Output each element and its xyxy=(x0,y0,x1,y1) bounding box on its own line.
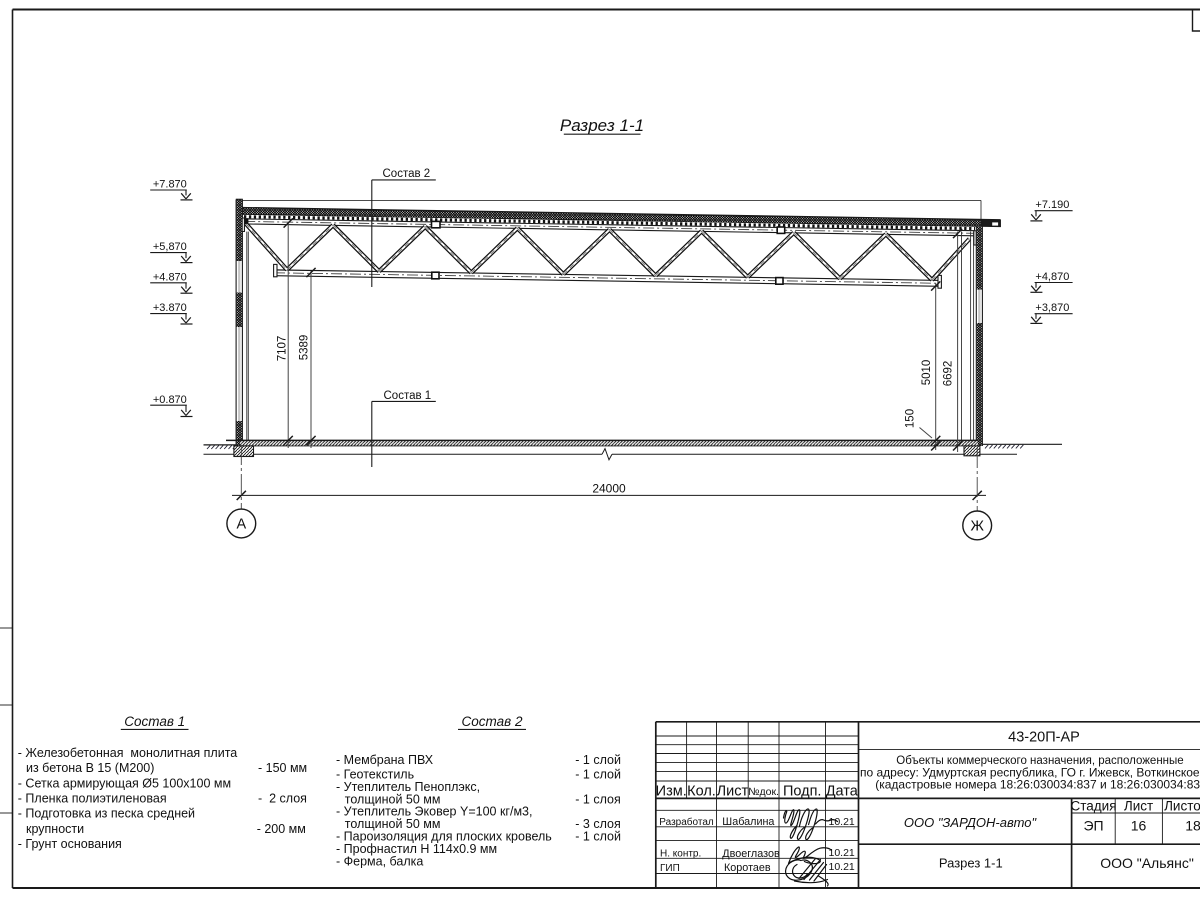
svg-text:Изм.: Изм. xyxy=(656,783,687,799)
svg-text:+5,870: +5,870 xyxy=(153,241,187,253)
svg-text:(кадастровые номера 18:26:0300: (кадастровые номера 18:26:030034:837 и 1… xyxy=(875,777,1200,791)
svg-text:Подп.: Подп. xyxy=(783,783,822,799)
svg-text:6692: 6692 xyxy=(943,361,955,387)
svg-text:Ж: Ж xyxy=(971,519,985,535)
svg-text:+7.190: +7.190 xyxy=(1035,199,1069,211)
svg-text:ООО "ЗАРДОН-авто": ООО "ЗАРДОН-авто" xyxy=(904,815,1038,830)
svg-text:ЭП: ЭП xyxy=(1083,818,1103,834)
svg-text:- Пленка полиэтиленовая: - Пленка полиэтиленовая xyxy=(18,791,167,805)
svg-text:- Ферма, балка: - Ферма, балка xyxy=(336,854,423,868)
svg-text:10.21: 10.21 xyxy=(829,861,855,873)
svg-text:Лист: Лист xyxy=(1124,799,1153,814)
svg-text:- 1 слоя: - 1 слоя xyxy=(575,792,620,806)
svg-text:- 2 слоя: - 2 слоя xyxy=(258,791,307,805)
svg-text:- 1 слой: - 1 слой xyxy=(575,753,621,767)
svg-text:150: 150 xyxy=(904,409,916,428)
svg-text:+7.870: +7.870 xyxy=(153,179,187,191)
svg-text:18: 18 xyxy=(1185,818,1200,834)
svg-text:- 200 мм: - 200 мм xyxy=(257,822,306,836)
svg-text:Состав 1: Состав 1 xyxy=(124,714,185,729)
svg-text:Дата: Дата xyxy=(826,783,859,799)
svg-text:Разработал: Разработал xyxy=(659,816,714,828)
svg-text:+4,870: +4,870 xyxy=(1035,271,1069,283)
svg-text:5010: 5010 xyxy=(921,360,933,386)
svg-text:- 1 слой: - 1 слой xyxy=(575,830,621,844)
svg-text:10.21: 10.21 xyxy=(829,847,855,859)
svg-text:- Железобетонная монолитная п: - Железобетонная монолитная плита xyxy=(18,746,237,760)
svg-text:Шабалина: Шабалина xyxy=(722,816,774,828)
svg-text:- 1 слой: - 1 слой xyxy=(575,768,621,782)
svg-text:ООО "Альянс": ООО "Альянс" xyxy=(1100,855,1194,871)
svg-text:Лист: Лист xyxy=(717,783,749,799)
svg-text:Состав 1: Состав 1 xyxy=(384,390,432,402)
svg-text:Стадия: Стадия xyxy=(1070,799,1116,814)
svg-text:А: А xyxy=(236,517,246,533)
svg-text:из бетона В 15 (М200): из бетона В 15 (М200) xyxy=(26,761,154,775)
svg-text:Кол.: Кол. xyxy=(687,783,716,799)
svg-text:Состав 2: Состав 2 xyxy=(462,714,523,729)
svg-text:7107: 7107 xyxy=(276,336,288,362)
svg-text:+3,870: +3,870 xyxy=(1035,302,1069,314)
svg-text:24000: 24000 xyxy=(592,481,626,495)
svg-text:- Подготовка из песка средней: - Подготовка из песка средней xyxy=(18,807,195,821)
svg-text:- Мембрана ПВХ: - Мембрана ПВХ xyxy=(336,753,434,767)
svg-text:крупности: крупности xyxy=(26,822,84,836)
svg-text:5389: 5389 xyxy=(299,335,311,361)
svg-text:- Сетка армирующая Ø5 100х100: - Сетка армирующая Ø5 100х100 мм xyxy=(18,776,231,790)
svg-text:43-20П-АР: 43-20П-АР xyxy=(1008,730,1080,746)
svg-text:Разрез 1-1: Разрез 1-1 xyxy=(560,116,644,135)
svg-text:Коротаев: Коротаев xyxy=(724,862,771,874)
svg-text:- 150 мм: - 150 мм xyxy=(258,761,307,775)
svg-text:16: 16 xyxy=(1131,818,1147,834)
svg-text:- Грунт основания: - Грунт основания xyxy=(18,837,122,851)
svg-text:Н. контр.: Н. контр. xyxy=(660,849,701,860)
svg-text:10.21: 10.21 xyxy=(829,816,855,828)
svg-text:+0.870: +0.870 xyxy=(153,394,187,406)
svg-text:+4.870: +4.870 xyxy=(153,271,187,283)
svg-text:Состав 2: Состав 2 xyxy=(383,168,431,180)
svg-text:№док.: №док. xyxy=(748,786,779,798)
svg-text:Двоеглазов: Двоеглазов xyxy=(722,848,780,860)
svg-text:+3.870: +3.870 xyxy=(153,302,187,314)
svg-text:Разрез 1-1: Разрез 1-1 xyxy=(939,855,1003,870)
svg-text:ГИП: ГИП xyxy=(660,863,680,874)
svg-text:Листов: Листов xyxy=(1164,799,1200,814)
